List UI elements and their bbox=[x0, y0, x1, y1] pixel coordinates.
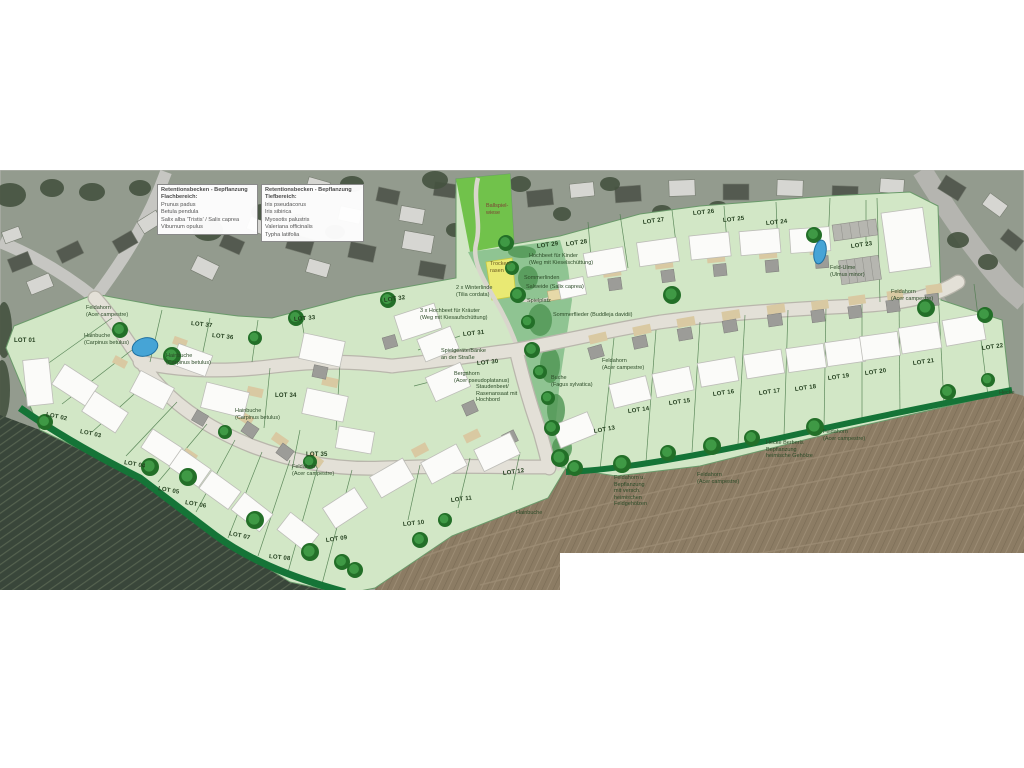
site-development-plan-page: Retentionsbecken - Bepflanzung Flachbere… bbox=[0, 0, 1024, 768]
aerial-site-plan-map bbox=[0, 0, 1024, 768]
planned-house bbox=[739, 228, 781, 255]
planned-house bbox=[786, 343, 827, 372]
planned-house bbox=[689, 232, 731, 260]
planned-house bbox=[860, 331, 901, 360]
planned-house bbox=[825, 337, 866, 366]
planned-house bbox=[881, 207, 931, 272]
planned-house bbox=[637, 237, 680, 266]
planned-house bbox=[23, 358, 54, 406]
